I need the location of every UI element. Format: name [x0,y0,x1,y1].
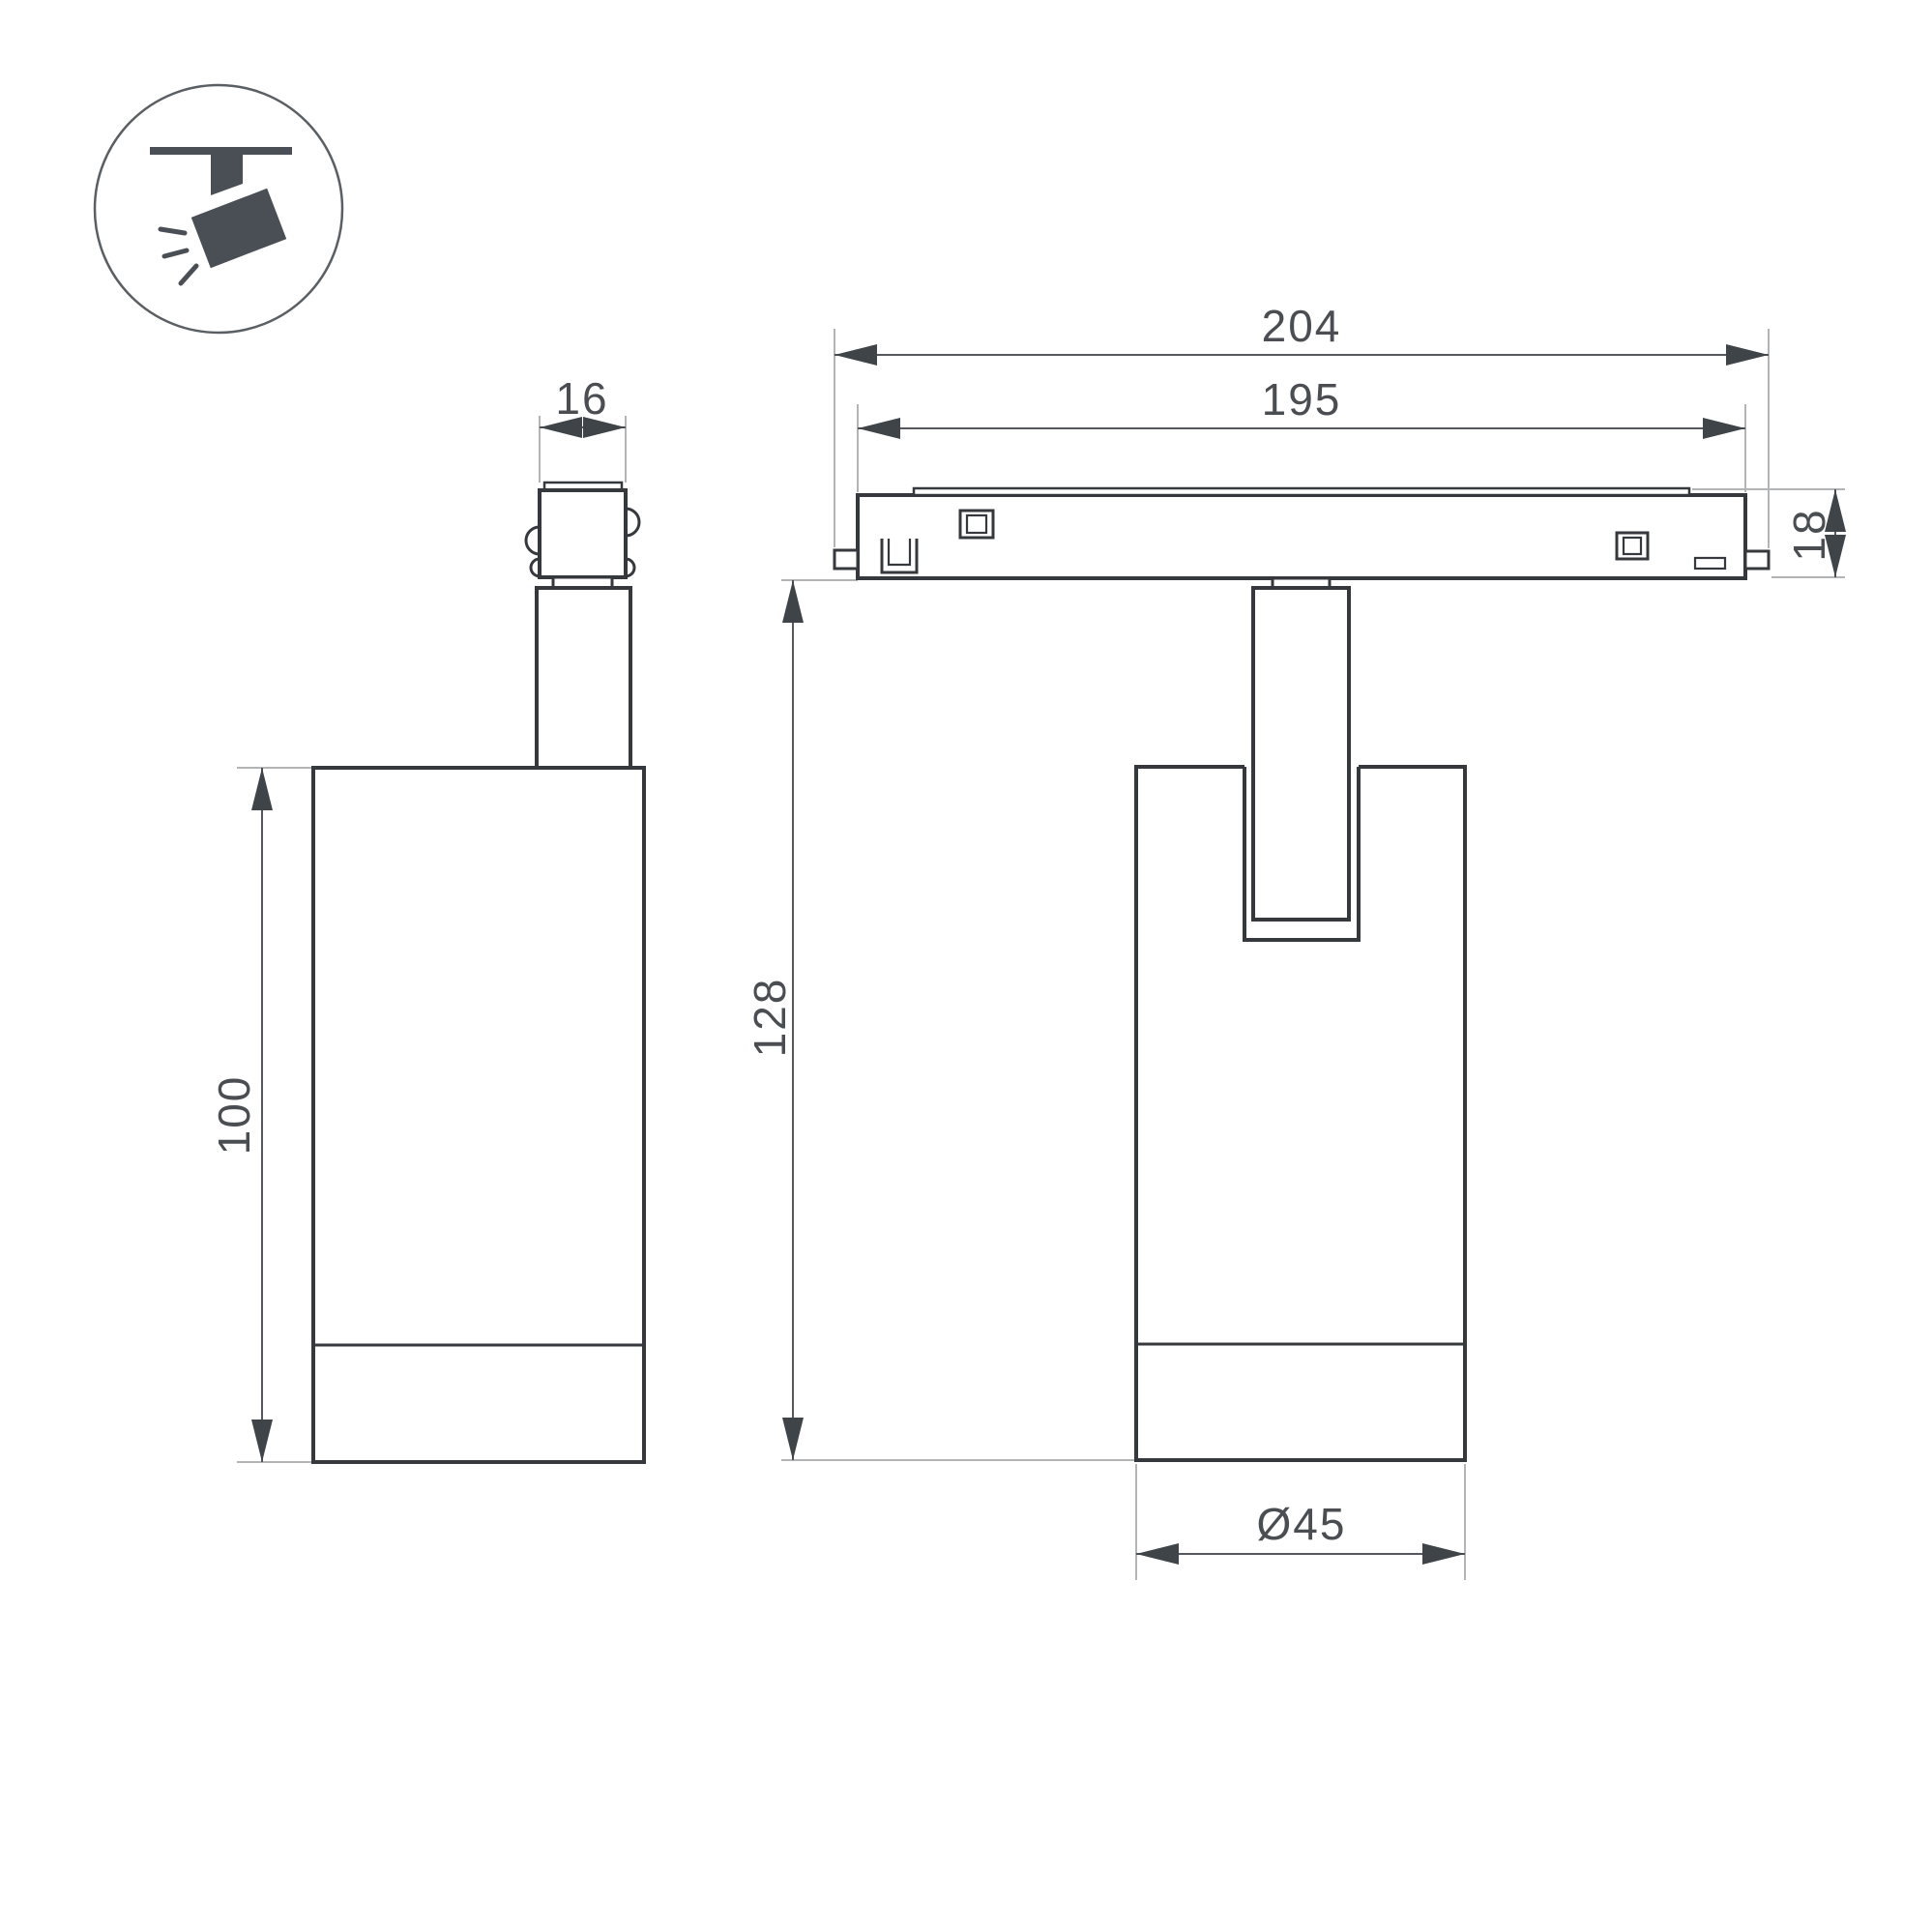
dim-label-204: 204 [1262,301,1342,351]
dim-label-d45: Ø45 [1257,1499,1347,1549]
technical-drawing-canvas: 16 100 [0,0,1932,1932]
dim-label-16: 16 [555,373,608,424]
side-body [313,768,644,1462]
arrowhead [782,1418,804,1460]
side-stem [537,588,630,768]
front-stem [1253,588,1349,920]
arrowhead [1422,1543,1465,1565]
track-rail-strip [914,488,1689,495]
dim-label-195: 195 [1262,374,1342,424]
side-view: 16 100 [209,373,644,1462]
dimension-16: 16 [540,373,626,438]
side-track-adapter [540,490,626,577]
dimension-diameter-45: Ø45 [1136,1499,1465,1565]
side-adapter-spring-right-large [626,509,639,536]
track-end-tab-left [834,550,858,569]
front-view: 204 195 18 128 Ø45 [745,301,1846,1580]
pictogram-ceiling-bar [150,147,292,155]
arrowhead [1136,1543,1179,1565]
arrowhead [1726,344,1769,366]
dimension-204: 204 [834,301,1769,366]
spotlight-pictogram [95,85,342,333]
arrowhead [858,418,900,439]
dimension-18: 18 [1784,489,1846,577]
dimension-100: 100 [209,768,273,1462]
dim-label-100: 100 [209,1075,259,1156]
dimension-128: 128 [745,580,804,1460]
arrowhead [782,580,804,623]
arrowhead [251,768,273,810]
arrowhead [834,344,877,366]
arrowhead [1703,418,1745,439]
track-end-tab-right [1745,551,1769,569]
dim-label-18: 18 [1784,508,1834,561]
dimension-195: 195 [858,374,1745,439]
dim-label-128: 128 [745,978,795,1058]
arrowhead [251,1420,273,1462]
side-adapter-spring-left-large [526,527,540,554]
